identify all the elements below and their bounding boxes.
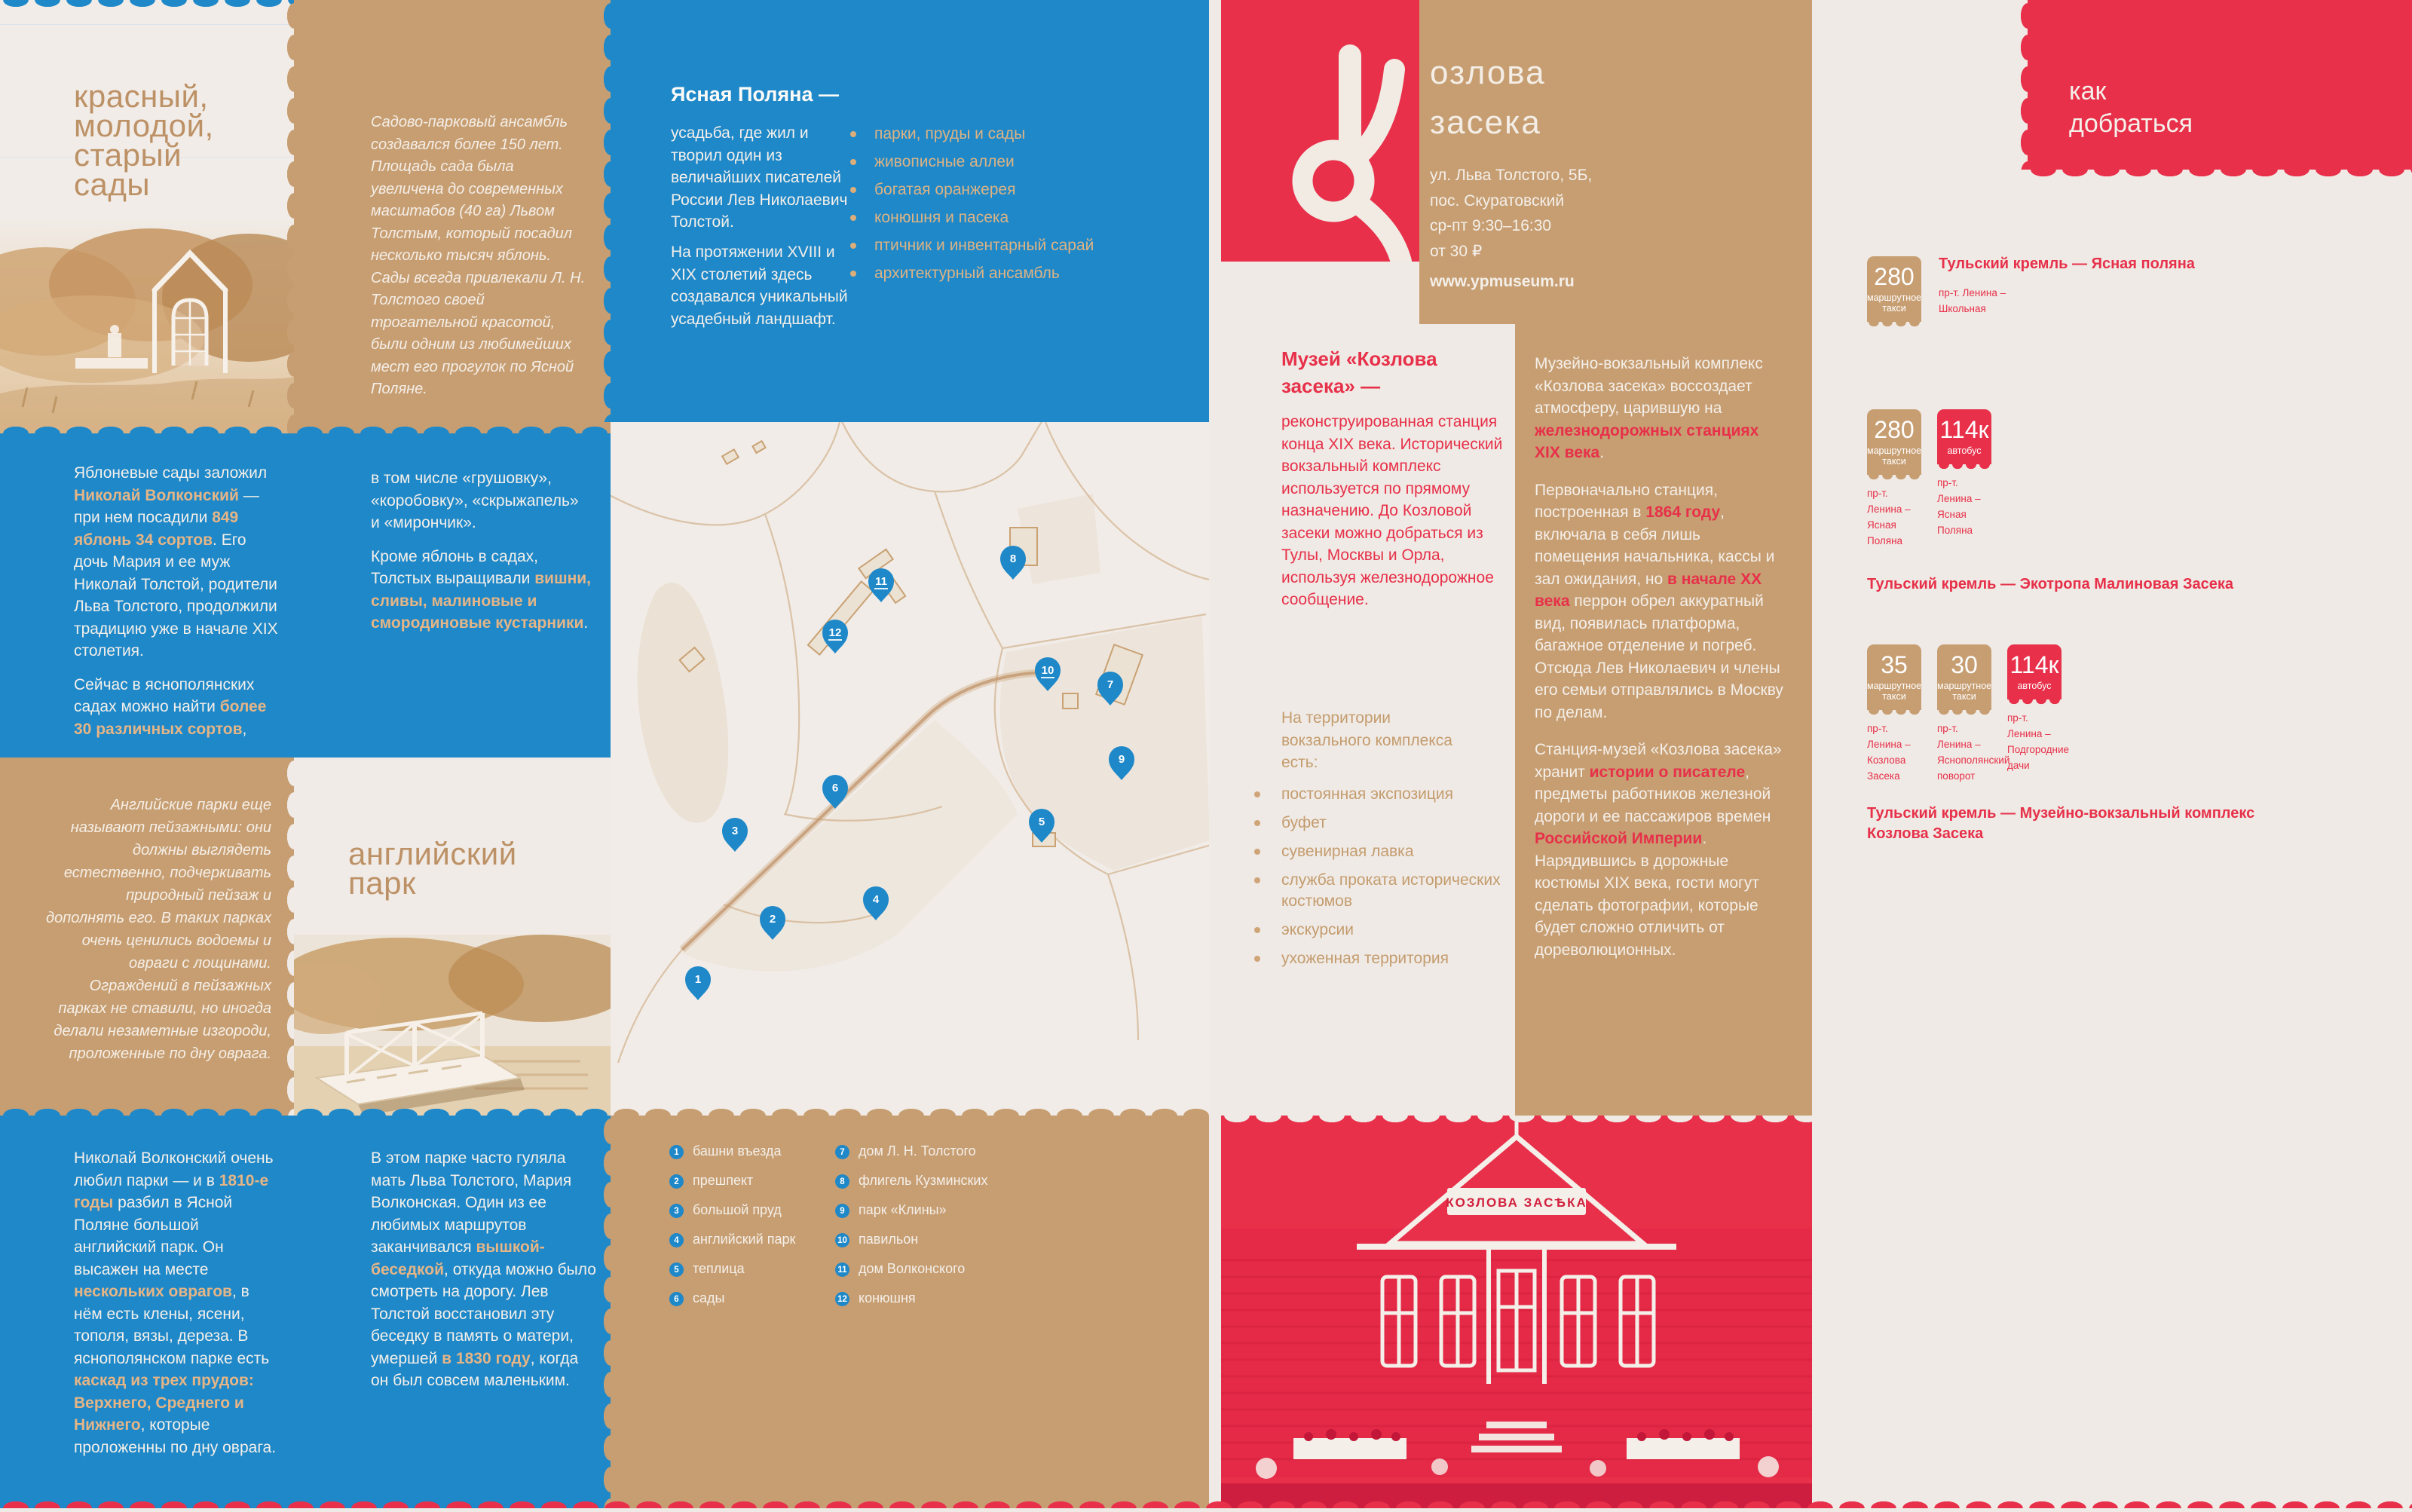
route-group-3: 35маршрутное таксипр-т. Ленина – Козлова… (1867, 644, 2395, 844)
svg-text:12: 12 (829, 626, 842, 639)
panel-how-to-get: как добраться (2028, 0, 2412, 170)
list-item: парки, пруды и сады (850, 124, 1099, 145)
panel-mother-park: В этом парке часто гуляла мать Льва Толс… (294, 1116, 611, 1508)
station-photo: КОЗЛОВА ЗАСѢКА (1221, 1116, 1812, 1508)
list-item: конюшня и пасека (850, 207, 1099, 228)
route-badge: 35маршрутное такси (1867, 644, 1921, 710)
brand-letter-block (1221, 0, 1419, 262)
hero-address: ул. Льва Толстого, 5Б, пос. Скуратовский… (1430, 163, 1592, 264)
estate-features-list: парки, пруды и садыживописные аллеибогат… (850, 124, 1099, 291)
wave-edge (611, 1106, 1209, 1116)
route-badges-row: 35маршрутное таксипр-т. Ленина – Козлова… (1867, 644, 2395, 784)
territory-list: постоянная экспозициябуфетсувенирная лав… (1281, 784, 1515, 977)
route-caption: пр-т. Ленина – Подгородние дачи (2007, 710, 2062, 773)
list-item: буфет (1281, 813, 1515, 834)
station-paragraph-1: Музейно-вокзальный комплекс «Козлова зас… (1535, 353, 1785, 464)
svg-text:1: 1 (695, 973, 701, 986)
route-group-2: 280маршрутное таксипр-т. Ленина – Ясная … (1867, 409, 2395, 595)
english-parks-note: Английские парки еще называют пейзажными… (44, 794, 271, 1065)
gardens-title: красный, молодой, старый сады (74, 81, 214, 199)
garden-history-text: Садово-парковый ансамбль создавался боле… (371, 112, 588, 401)
fold-crease (0, 24, 294, 25)
route-badge: 280маршрутное такси (1867, 409, 1921, 475)
legend-column-right: 7дом Л. Н. Толстого8флигель Кузминских9п… (835, 1144, 1031, 1321)
route-badge: 114кавтобус (1937, 409, 1991, 464)
mother-park-paragraph: В этом парке часто гуляла мать Льва Толс… (371, 1147, 597, 1392)
brochure-scan: { "colors":{"blue":"#1e88c9","tan":"#c79… (0, 0, 2412, 1508)
panel-station-story: Музейно-вокзальный комплекс «Козлова зас… (1515, 324, 1812, 1116)
english-park-title: английский парк (348, 839, 517, 898)
svg-text:10: 10 (1042, 664, 1054, 677)
legend-item: 8флигель Кузминских (835, 1174, 1031, 1189)
logo-k-icon (1221, 0, 1419, 262)
route-badge: 280 маршрутное такси (1867, 256, 1921, 322)
museum-body: реконструированная станция конца XIX век… (1281, 411, 1519, 611)
orchard-photo (0, 219, 294, 433)
svg-text:5: 5 (1039, 816, 1045, 828)
legend-item: 9парк «Клины» (835, 1203, 1031, 1218)
panel-yasnaya-polyana: Ясная Поляна — усадьба, где жил и творил… (611, 0, 1209, 422)
panel-apple-gardens: Яблоневые сады заложил Николай Волконски… (0, 433, 294, 758)
volkonsky-paragraph: Николай Волконский очень любил парки — и… (74, 1147, 282, 1458)
legend-item: 1башни въезда (669, 1144, 835, 1159)
svg-text:6: 6 (832, 782, 838, 794)
station-paragraph-3: Станция-музей «Козлова засека» хранит ис… (1535, 739, 1785, 961)
fold-wave-bottom (0, 1498, 2412, 1508)
route-caption: пр-т. Ленина – Ясная Поляна (1937, 475, 1991, 538)
panel-english-park: английский парк (294, 758, 611, 1116)
list-item: служба проката исторических костюмов (1281, 870, 1515, 912)
wave-edge (294, 424, 611, 433)
yasnaya-title: Ясная Поляна — (671, 83, 839, 106)
legend-item: 5теплица (669, 1262, 835, 1277)
fold-wave-top (0, 0, 294, 10)
legend-column-left: 1башни въезда2прешпект3большой пруд4англ… (669, 1144, 835, 1321)
list-item: постоянная экспозиция (1281, 784, 1515, 805)
wave-edge (1221, 1116, 1812, 1125)
wave-edge (0, 424, 294, 433)
legend-item: 3большой пруд (669, 1203, 835, 1218)
route-caption: пр-т. Ленина – Яснополянский поворот (1937, 721, 1991, 784)
svg-text:8: 8 (1010, 552, 1016, 565)
apple-gardens-paragraph: Яблоневые сады заложил Николай Волконски… (74, 462, 279, 663)
list-item: экскурсии (1281, 920, 1515, 941)
legend-item: 7дом Л. Н. Толстого (835, 1144, 1031, 1159)
route-title: Тульский кремль — Экотропа Малиновая Зас… (1867, 574, 2395, 595)
list-item: богатая оранжерея (850, 179, 1099, 200)
hero-title: озлова засека (1430, 48, 1546, 148)
legend-item: 11дом Волконского (835, 1262, 1031, 1277)
bridge-photo (294, 935, 611, 1116)
route-caption: пр-т. Ленина – Ясная Поляна (1867, 485, 1921, 549)
list-item: сувенирная лавка (1281, 841, 1515, 862)
panel-apple-varieties: в том числе «грушовку», «коробовку», «ск… (294, 433, 611, 758)
svg-text:2: 2 (770, 913, 776, 926)
panel-gardens-cover: красный, молодой, старый сады (0, 0, 294, 433)
station-paragraph-2: Первоначально станция, построенная в 186… (1535, 479, 1785, 724)
route-title: Тульский кремль — Ясная поляна (1939, 254, 2361, 274)
route-number: 280 (1867, 263, 1921, 290)
apple-varieties-paragraph: Кроме яблонь в садах, Толстых выращивали… (371, 546, 591, 635)
svg-text:9: 9 (1119, 753, 1125, 766)
panel-volkonsky: Николай Волконский очень любил парки — и… (0, 1116, 294, 1508)
apple-gardens-paragraph: Сейчас в яснополянских садах можно найти… (74, 674, 279, 741)
legend-item: 2прешпект (669, 1174, 835, 1189)
route-title: Тульский кремль — Музейно-вокзальный ком… (1867, 803, 2395, 844)
station-photo-art: КОЗЛОВА ЗАСѢКА (1221, 1116, 1812, 1508)
route-badges-row: 280маршрутное таксипр-т. Ленина – Ясная … (1867, 409, 2395, 549)
wave-edge (2018, 0, 2028, 170)
svg-text:4: 4 (873, 893, 880, 906)
museum-heading: Музей «Козлова засека» — (1281, 345, 1507, 399)
panel-map-legend: 1башни въезда2прешпект3большой пруд4англ… (611, 1116, 1209, 1508)
wave-edge (2028, 170, 2412, 179)
apple-varieties-paragraph: в том числе «грушовку», «коробовку», «ск… (371, 467, 591, 534)
route-badge-column: 114кавтобуспр-т. Ленина – Ясная Поляна (1937, 409, 1991, 538)
estate-map: 123456789101112 (611, 422, 1209, 1116)
wave-edge (601, 0, 611, 422)
panel-english-note: Английские парки еще называют пейзажными… (0, 758, 294, 1116)
panel-garden-history: Садово-парковый ансамбль создавался боле… (294, 0, 611, 433)
route-badge: 30маршрутное такси (1937, 644, 1991, 710)
route-type: маршрутное такси (1867, 292, 1921, 314)
legend-item: 10павильон (835, 1232, 1031, 1247)
route-badge-column: 30маршрутное таксипр-т. Ленина – Яснопол… (1937, 644, 1991, 784)
legend-item: 4английский парк (669, 1232, 835, 1247)
route-caption: пр-т. Ленина – Школьная (1939, 285, 2361, 317)
list-item: живописные аллеи (850, 152, 1099, 173)
svg-text:3: 3 (732, 825, 738, 837)
route-badge: 114кавтобус (2007, 644, 2062, 699)
wave-edge (294, 1106, 611, 1116)
route-badge-column: 280маршрутное таксипр-т. Ленина – Ясная … (1867, 409, 1921, 549)
list-item: ухоженная территория (1281, 948, 1515, 969)
hero-website: www.ypmuseum.ru (1430, 273, 1575, 291)
legend-item: 6сады (669, 1291, 835, 1306)
list-item: птичник и инвентарный сарай (850, 235, 1099, 256)
svg-text:7: 7 (1107, 678, 1113, 691)
route-badge-column: 35маршрутное таксипр-т. Ленина – Козлова… (1867, 644, 1921, 784)
wave-edge (0, 1106, 294, 1116)
route-caption: пр-т. Ленина – Козлова Засека (1867, 721, 1921, 784)
station-sign: КОЗЛОВА ЗАСѢКА (1446, 1195, 1587, 1210)
wave-edge (284, 0, 294, 433)
yasnaya-paragraph-2: На протяжении XVIII и XIX столетий здесь… (671, 241, 852, 330)
svg-text:11: 11 (875, 575, 887, 588)
wave-edge (284, 758, 294, 1116)
legend-item: 12конюшня (835, 1291, 1031, 1306)
how-to-get-title: как добраться (2069, 75, 2193, 140)
yasnaya-paragraph-1: усадьба, где жил и творил один из велича… (671, 122, 852, 234)
wave-edge (601, 1116, 611, 1508)
territory-intro: На территории вокзального комплекса есть… (1281, 707, 1477, 774)
panel-hero-address: озлова засека ул. Льва Толстого, 5Б, пос… (1419, 0, 1812, 324)
list-item: архитектурный ансамбль (850, 263, 1099, 284)
route-badge-column: 114кавтобуспр-т. Ленина – Подгородние да… (2007, 644, 2062, 773)
